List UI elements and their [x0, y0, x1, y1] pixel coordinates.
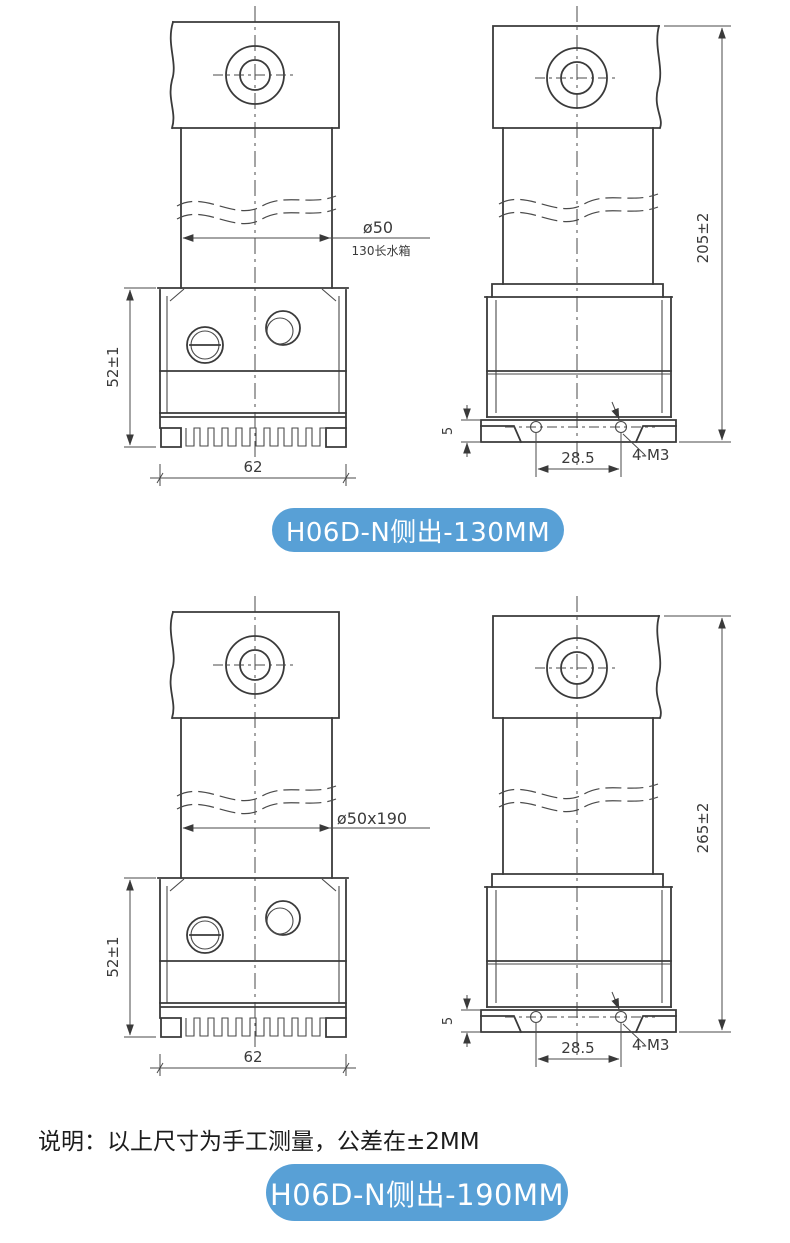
dim-holes-label: 4-M3 [632, 446, 669, 464]
dim-dia-label: ø50x190 [337, 809, 407, 828]
dim-dia-label: ø50 [363, 218, 393, 237]
dim-holes-label: 4-M3 [632, 1036, 669, 1054]
front-view-190 [124, 596, 430, 1076]
dim-head-height-label: 52±1 [104, 346, 122, 387]
technical-drawing-canvas: ø50 130长水箱 52±1 62 205±2 5 28.5 4-M3 ø50… [0, 0, 790, 1243]
drawing-190mm: ø50x190 52±1 62 265±2 5 28.5 4-M3 [104, 596, 731, 1076]
dim-head-height-label: 52±1 [104, 936, 122, 977]
dim-flange-label: 5 [441, 427, 456, 435]
model-badge-130mm: H06D-N侧出-130MM [272, 508, 564, 552]
tolerance-note: 说明：以上尺寸为手工测量，公差在±2MM [38, 1122, 480, 1156]
dim-flange-label: 5 [441, 1017, 456, 1025]
side-view-190 [461, 596, 731, 1067]
dim-head-width-label: 62 [243, 458, 262, 476]
drawing-130mm: ø50 130长水箱 52±1 62 205±2 5 28.5 4-M3 [104, 6, 731, 486]
dim-head-width-label: 62 [243, 1048, 262, 1066]
side-view-130 [461, 6, 731, 477]
dim-holes-span-label: 28.5 [561, 1039, 594, 1057]
dim-overall-label: 265±2 [694, 803, 712, 854]
dim-dia-note-label: 130长水箱 [352, 243, 411, 258]
model-badge-190mm: H06D-N侧出-190MM [266, 1164, 568, 1221]
dim-overall-label: 205±2 [694, 213, 712, 264]
dim-holes-span-label: 28.5 [561, 449, 594, 467]
